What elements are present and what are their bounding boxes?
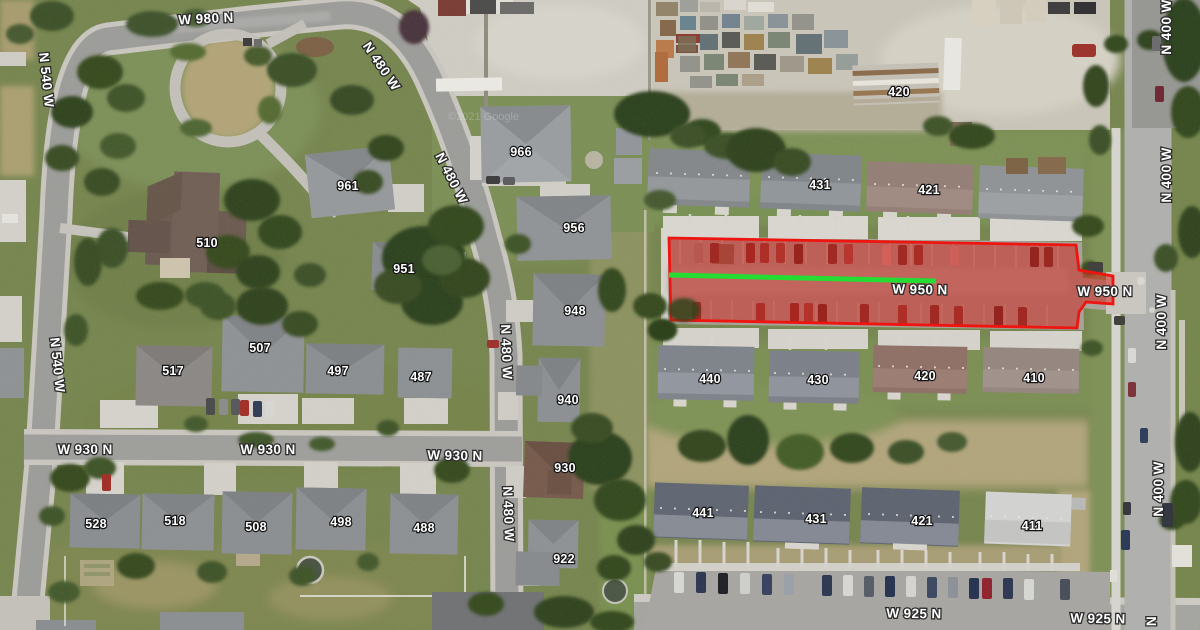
svg-text:©2021 Google: ©2021 Google <box>448 111 519 123</box>
svg-text:N 480 W: N 480 W <box>500 486 517 542</box>
svg-text:517: 517 <box>162 364 183 378</box>
svg-text:508: 508 <box>245 520 266 534</box>
svg-text:507: 507 <box>249 341 270 355</box>
svg-text:488: 488 <box>413 521 434 535</box>
svg-text:420: 420 <box>914 369 935 383</box>
svg-text:518: 518 <box>164 514 185 528</box>
svg-text:951: 951 <box>393 262 414 276</box>
svg-text:N 400 W: N 400 W <box>1151 461 1166 516</box>
svg-text:421: 421 <box>911 514 932 528</box>
svg-text:930: 930 <box>554 461 575 475</box>
svg-text:440: 440 <box>699 372 720 386</box>
svg-text:W 930 N: W 930 N <box>427 448 483 464</box>
svg-text:W 930 N: W 930 N <box>240 442 295 457</box>
svg-text:N: N <box>1144 616 1159 626</box>
svg-text:411: 411 <box>1022 519 1043 533</box>
svg-text:966: 966 <box>510 145 531 159</box>
svg-text:487: 487 <box>410 370 431 384</box>
svg-text:W 925 N: W 925 N <box>886 606 942 622</box>
svg-text:431: 431 <box>809 178 830 192</box>
svg-text:W 980 N: W 980 N <box>178 10 234 28</box>
svg-text:441: 441 <box>692 506 713 520</box>
svg-text:510: 510 <box>196 236 217 250</box>
svg-text:W 925 N: W 925 N <box>1070 611 1126 627</box>
svg-text:497: 497 <box>327 364 348 378</box>
svg-text:410: 410 <box>1023 371 1044 385</box>
svg-text:420: 420 <box>888 85 909 99</box>
svg-text:961: 961 <box>337 179 358 193</box>
svg-text:N 400 W: N 400 W <box>1159 147 1174 202</box>
svg-text:956: 956 <box>563 221 584 235</box>
svg-text:N 400 W: N 400 W <box>1154 294 1169 349</box>
svg-text:430: 430 <box>807 373 828 387</box>
svg-text:W 950 N: W 950 N <box>892 282 948 298</box>
svg-text:W 950 N: W 950 N <box>1077 284 1132 299</box>
svg-text:N 400 W: N 400 W <box>1159 0 1174 55</box>
svg-text:421: 421 <box>918 183 939 197</box>
svg-text:948: 948 <box>564 304 585 318</box>
svg-text:922: 922 <box>553 552 574 566</box>
svg-text:431: 431 <box>805 512 826 526</box>
svg-text:498: 498 <box>330 515 351 529</box>
svg-text:940: 940 <box>557 393 578 407</box>
svg-text:N 480 W: N 480 W <box>498 324 515 380</box>
svg-text:528: 528 <box>85 517 106 531</box>
svg-text:W 930 N: W 930 N <box>57 442 112 457</box>
